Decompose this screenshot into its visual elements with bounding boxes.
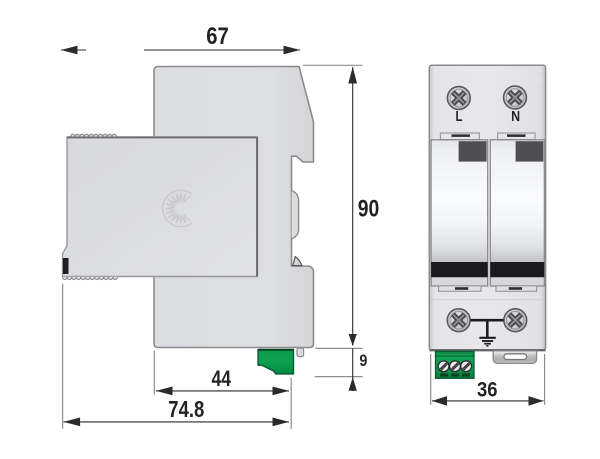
svg-text:67: 67 [206, 23, 229, 50]
svg-text:L: L [456, 109, 463, 125]
svg-text:N: N [511, 109, 520, 125]
svg-text:9: 9 [359, 351, 367, 370]
svg-text:36: 36 [477, 378, 498, 401]
svg-text:44: 44 [212, 366, 232, 391]
svg-text:90: 90 [358, 196, 380, 223]
svg-text:74.8: 74.8 [168, 396, 204, 422]
